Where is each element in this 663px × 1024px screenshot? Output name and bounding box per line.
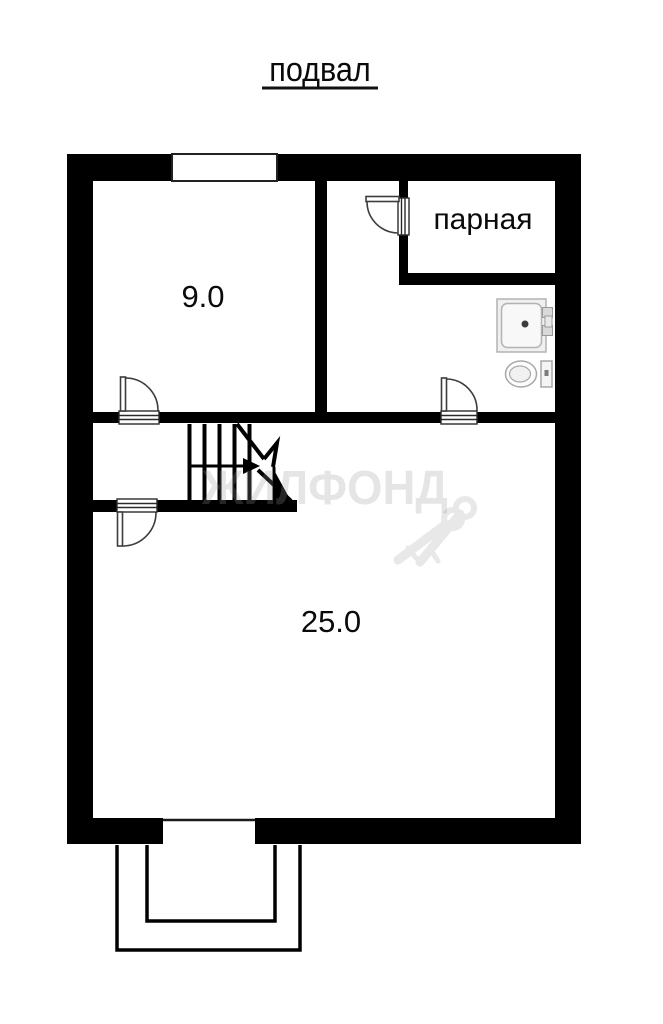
door-main-room: [118, 512, 157, 546]
plan-title: подвал: [269, 51, 371, 89]
wall-steam-left-a: [399, 181, 408, 198]
threshold-steam-door: [398, 198, 409, 235]
porch-steps: [117, 845, 300, 950]
toilet-icon: [506, 361, 553, 387]
floor-plan-drawing: подвал 9.0 парная 25.0 ЖИЛФОНД: [0, 0, 663, 1024]
labels: подвал 9.0 парная 25.0: [181, 51, 532, 639]
wall-right: [555, 154, 581, 844]
porch-outer-step: [117, 845, 300, 950]
wall-stairs-bottom-a: [93, 500, 117, 512]
opening-bottom: [163, 818, 255, 844]
threshold-main-room-door: [117, 499, 157, 512]
door-steam: [366, 197, 399, 234]
shower-drain-icon: [522, 321, 529, 328]
wall-steam-bottom: [399, 273, 555, 285]
wall-bottom: [67, 818, 581, 844]
porch-inner-step: [147, 845, 275, 921]
wall-corridor-top-a: [93, 412, 119, 423]
wall-corridor-top-c: [477, 412, 555, 423]
wall-left: [67, 154, 93, 844]
wall-corridor-top-b: [159, 412, 441, 423]
steam-room-label: парная: [433, 203, 532, 236]
shower-icon: [497, 299, 553, 352]
watermark-text: ЖИЛФОНД: [201, 461, 448, 514]
wall-top: [67, 154, 581, 181]
wall-room9-right: [315, 181, 327, 412]
door-bathroom: [442, 378, 478, 411]
door-room9: [121, 377, 159, 411]
threshold-bathroom-door: [441, 411, 477, 424]
room-area-label-9: 9.0: [181, 279, 224, 314]
threshold-room9-door: [119, 411, 159, 424]
floor-plan: подвал 9.0 парная 25.0 ЖИЛФОНД: [0, 0, 663, 1024]
room-area-label-25: 25.0: [301, 604, 361, 639]
window-top: [172, 154, 277, 181]
